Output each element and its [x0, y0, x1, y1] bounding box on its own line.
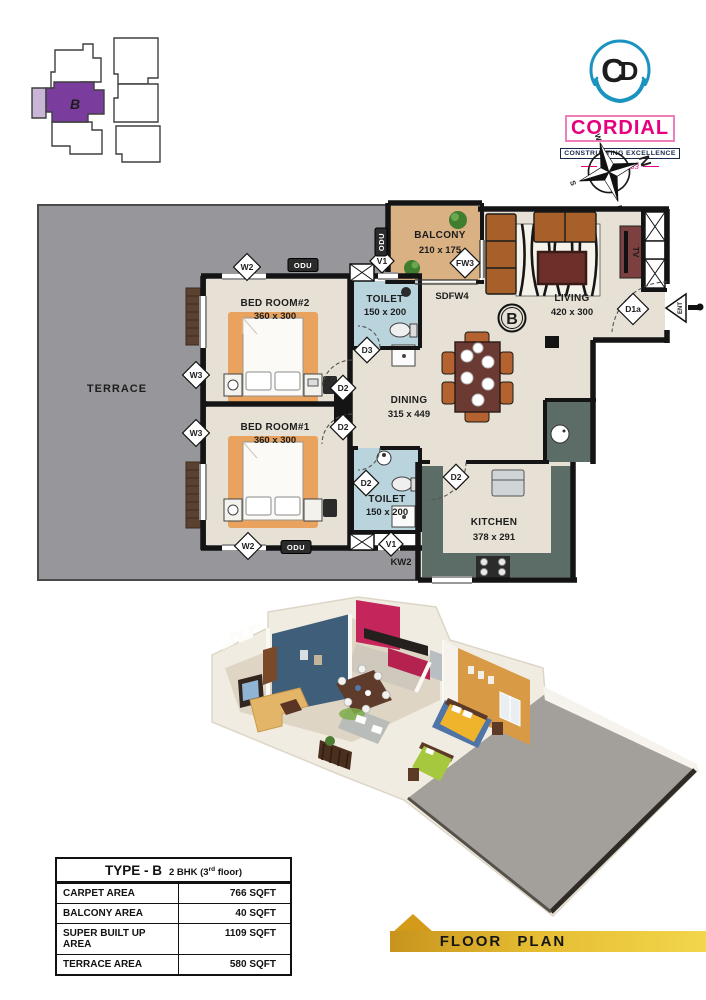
svg-text:150 x 200: 150 x 200 [366, 507, 408, 518]
svg-text:W3: W3 [190, 428, 203, 438]
marker-sdfw4: SDFW4 [435, 291, 469, 302]
plan-scene: TV [0, 0, 706, 1000]
svg-text:V1: V1 [377, 256, 388, 266]
area-table: TYPE - B 2 BHK (3rd floor) CARPET AREA76… [55, 857, 292, 976]
table-row: SUPER BUILT UP AREA1109 SQFT [57, 923, 290, 954]
table-row: TERRACE AREA580 SQFT [57, 954, 290, 974]
svg-text:W2: W2 [242, 541, 255, 551]
table-row: CARPET AREA766 SQFT [57, 883, 290, 903]
svg-text:TV: TV [631, 247, 641, 258]
svg-text:V1: V1 [386, 539, 397, 549]
odu-box-bottom: ODU [281, 541, 311, 554]
floor-plan-banner: FLOOR PLAN [390, 931, 706, 952]
toilet-top-label: TOILET [366, 294, 403, 305]
svg-text:FW3: FW3 [456, 258, 474, 268]
table-row: BALCONY AREA40 SQFT [57, 903, 290, 923]
svg-text:D3: D3 [362, 345, 373, 355]
bedroom1-label: BED ROOM#1 [240, 422, 309, 433]
shaft [645, 212, 665, 288]
svg-text:378 x 291: 378 x 291 [473, 532, 516, 543]
toilet-bottom-label: TOILET [368, 494, 405, 505]
svg-text:ODU: ODU [377, 233, 386, 251]
svg-text:ENT: ENT [678, 302, 684, 314]
dining-label: DINING [391, 395, 428, 406]
balcony-label: BALCONY [414, 230, 466, 241]
entry-marker: ENT [666, 294, 704, 322]
living-label: LIVING [554, 293, 589, 304]
odu-box-balcony: ODU [375, 228, 387, 256]
kitchen-label: KITCHEN [471, 517, 518, 528]
svg-text:360 x 300: 360 x 300 [254, 311, 296, 322]
svg-text:D2: D2 [361, 478, 372, 488]
svg-text:ODU: ODU [294, 261, 312, 270]
odu-box-top: ODU [288, 259, 318, 272]
marker-kw2: KW2 [390, 557, 411, 568]
svg-text:D2: D2 [338, 383, 349, 393]
svg-text:315 x 449: 315 x 449 [388, 409, 430, 420]
fridge [492, 470, 524, 496]
svg-text:360 x 300: 360 x 300 [254, 435, 296, 446]
svg-text:D2: D2 [451, 472, 462, 482]
svg-text:ODU: ODU [287, 543, 305, 552]
banner-arrow-icon [393, 914, 433, 932]
svg-text:D1a: D1a [625, 304, 641, 314]
svg-text:D2: D2 [338, 422, 349, 432]
stove [476, 556, 510, 578]
wash-basin [551, 425, 569, 443]
floor-plan-2d: TV [38, 203, 704, 583]
svg-text:W2: W2 [241, 262, 254, 272]
svg-text:210 x 175: 210 x 175 [419, 245, 462, 256]
coffee-table [538, 252, 586, 284]
bedroom2-label: BED ROOM#2 [240, 298, 309, 309]
type-title: TYPE - B [105, 863, 162, 878]
tv-unit: TV [620, 226, 642, 278]
area-table-header: TYPE - B 2 BHK (3rd floor) [57, 859, 290, 883]
svg-text:420 x 300: 420 x 300 [551, 307, 593, 318]
floor-plan-poster: B C D CORDIAL CONSTRUCTING EXCELLENCE Si… [0, 0, 706, 1000]
terrace-label: TERRACE [87, 383, 147, 395]
svg-text:150 x 200: 150 x 200 [364, 307, 406, 318]
svg-text:B: B [506, 311, 518, 328]
svg-text:W3: W3 [190, 370, 203, 380]
